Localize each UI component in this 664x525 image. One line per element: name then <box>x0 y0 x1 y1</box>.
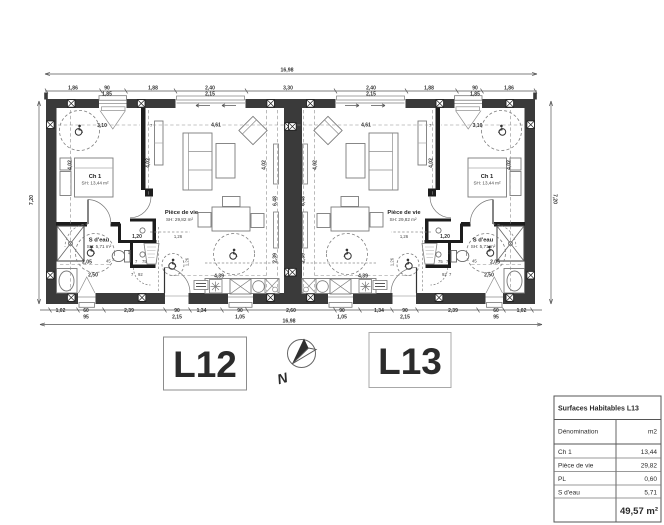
svg-text:2,39: 2,39 <box>124 308 134 314</box>
svg-text:S d'eau: S d'eau <box>473 238 494 244</box>
svg-text:4,61: 4,61 <box>211 123 221 129</box>
svg-text:Ch 1: Ch 1 <box>89 174 102 180</box>
svg-text:Ch 1: Ch 1 <box>558 449 572 456</box>
svg-text:2,40: 2,40 <box>205 85 215 91</box>
svg-text:6,48: 6,48 <box>273 196 279 206</box>
svg-text:2,05: 2,05 <box>82 260 92 266</box>
svg-text:SH: 29,82 m²: SH: 29,82 m² <box>389 217 417 222</box>
svg-text:2,15: 2,15 <box>205 92 215 98</box>
svg-text:3,30: 3,30 <box>283 85 293 91</box>
svg-text:PL: PL <box>558 476 566 483</box>
svg-text:4,02: 4,02 <box>146 158 152 168</box>
svg-text:1,26: 1,26 <box>174 234 183 239</box>
svg-text:Surfaces Habitables L13: Surfaces Habitables L13 <box>558 406 639 413</box>
svg-text:SH: 13,44 m²: SH: 13,44 m² <box>81 181 109 186</box>
svg-text:95: 95 <box>493 314 499 320</box>
svg-text:45: 45 <box>106 259 111 264</box>
svg-text:1,85: 1,85 <box>102 92 112 98</box>
svg-text:2,60: 2,60 <box>286 308 296 314</box>
svg-text:60: 60 <box>83 308 89 314</box>
svg-text:7,20: 7,20 <box>552 194 558 204</box>
svg-text:L12: L12 <box>173 344 237 385</box>
svg-text:1,26: 1,26 <box>400 234 409 239</box>
svg-text:2,39: 2,39 <box>273 253 279 263</box>
svg-text:4,39: 4,39 <box>214 274 224 280</box>
svg-text:Ch 1: Ch 1 <box>481 174 494 180</box>
svg-text:2,50: 2,50 <box>484 273 494 279</box>
svg-text:2,39: 2,39 <box>301 253 307 263</box>
svg-text:1,86: 1,86 <box>68 85 78 91</box>
svg-text:5,71: 5,71 <box>644 490 657 497</box>
svg-text:90: 90 <box>237 308 243 314</box>
svg-text:13,44: 13,44 <box>641 449 658 456</box>
svg-text:2,39: 2,39 <box>448 308 458 314</box>
svg-text:SH: 5,71 m²: SH: 5,71 m² <box>87 244 112 249</box>
svg-text:60: 60 <box>493 308 499 314</box>
svg-text:4,02: 4,02 <box>313 160 319 170</box>
svg-text:1,85: 1,85 <box>470 92 480 98</box>
svg-text:4,39: 4,39 <box>358 274 368 280</box>
svg-text:92: 92 <box>442 272 447 277</box>
svg-text:1,05: 1,05 <box>235 314 245 320</box>
svg-text:90: 90 <box>402 308 408 314</box>
svg-text:1,88: 1,88 <box>424 85 434 91</box>
svg-text:45: 45 <box>472 259 477 264</box>
svg-text:Dénomination: Dénomination <box>558 429 598 436</box>
svg-text:90: 90 <box>472 85 478 91</box>
svg-text:4,02: 4,02 <box>507 160 513 170</box>
svg-text:SH: 5,71 m²: SH: 5,71 m² <box>471 244 496 249</box>
svg-text:75: 75 <box>142 259 147 264</box>
svg-text:S d'eau: S d'eau <box>89 238 110 244</box>
svg-text:1,20: 1,20 <box>132 234 142 240</box>
svg-text:90: 90 <box>339 308 345 314</box>
svg-text:60: 60 <box>127 249 132 254</box>
svg-text:1,05: 1,05 <box>337 314 347 320</box>
svg-text:2,15: 2,15 <box>400 314 410 320</box>
svg-text:60: 60 <box>447 249 452 254</box>
svg-text:1,34: 1,34 <box>197 308 207 314</box>
svg-text:49,57 m²: 49,57 m² <box>620 506 658 517</box>
svg-text:29,82: 29,82 <box>641 463 658 470</box>
svg-text:4,61: 4,61 <box>361 123 371 129</box>
svg-text:3,10: 3,10 <box>97 123 107 129</box>
svg-text:16,98: 16,98 <box>281 68 294 74</box>
svg-text:3,10: 3,10 <box>473 123 483 129</box>
svg-text:90: 90 <box>174 308 180 314</box>
svg-text:2,15: 2,15 <box>366 92 376 98</box>
svg-text:SH: 13,44 m²: SH: 13,44 m² <box>473 181 501 186</box>
svg-text:1,88: 1,88 <box>148 85 158 91</box>
svg-text:SH: 29,82 m²: SH: 29,82 m² <box>166 217 194 222</box>
svg-text:95: 95 <box>83 314 89 320</box>
svg-text:1,20: 1,20 <box>440 234 450 240</box>
svg-text:6,48: 6,48 <box>301 196 307 206</box>
svg-text:S d'eau: S d'eau <box>558 490 580 497</box>
svg-text:2,40: 2,40 <box>366 85 376 91</box>
svg-text:4,02: 4,02 <box>429 158 435 168</box>
svg-text:Pièce de vie: Pièce de vie <box>165 210 199 216</box>
svg-text:Pièce de vie: Pièce de vie <box>558 463 594 470</box>
svg-text:1,02: 1,02 <box>517 308 527 314</box>
svg-text:1,86: 1,86 <box>504 85 514 91</box>
svg-text:2,05: 2,05 <box>490 260 500 266</box>
svg-text:1,34: 1,34 <box>374 308 384 314</box>
svg-text:L13: L13 <box>378 341 442 382</box>
svg-text:0,60: 0,60 <box>644 476 657 483</box>
svg-text:75: 75 <box>438 259 443 264</box>
svg-text:2,15: 2,15 <box>172 314 182 320</box>
svg-text:1,26: 1,26 <box>185 257 190 266</box>
svg-text:m2: m2 <box>648 429 657 436</box>
svg-text:92: 92 <box>138 272 143 277</box>
svg-text:2,50: 2,50 <box>88 273 98 279</box>
svg-text:90: 90 <box>104 85 110 91</box>
svg-text:7,20: 7,20 <box>29 195 35 205</box>
svg-text:Pièce de vie: Pièce de vie <box>387 210 421 216</box>
svg-text:1,26: 1,26 <box>390 257 395 266</box>
svg-text:4,02: 4,02 <box>68 160 74 170</box>
svg-text:16,98: 16,98 <box>283 318 296 324</box>
svg-text:4,02: 4,02 <box>262 160 268 170</box>
svg-text:1,02: 1,02 <box>56 308 66 314</box>
